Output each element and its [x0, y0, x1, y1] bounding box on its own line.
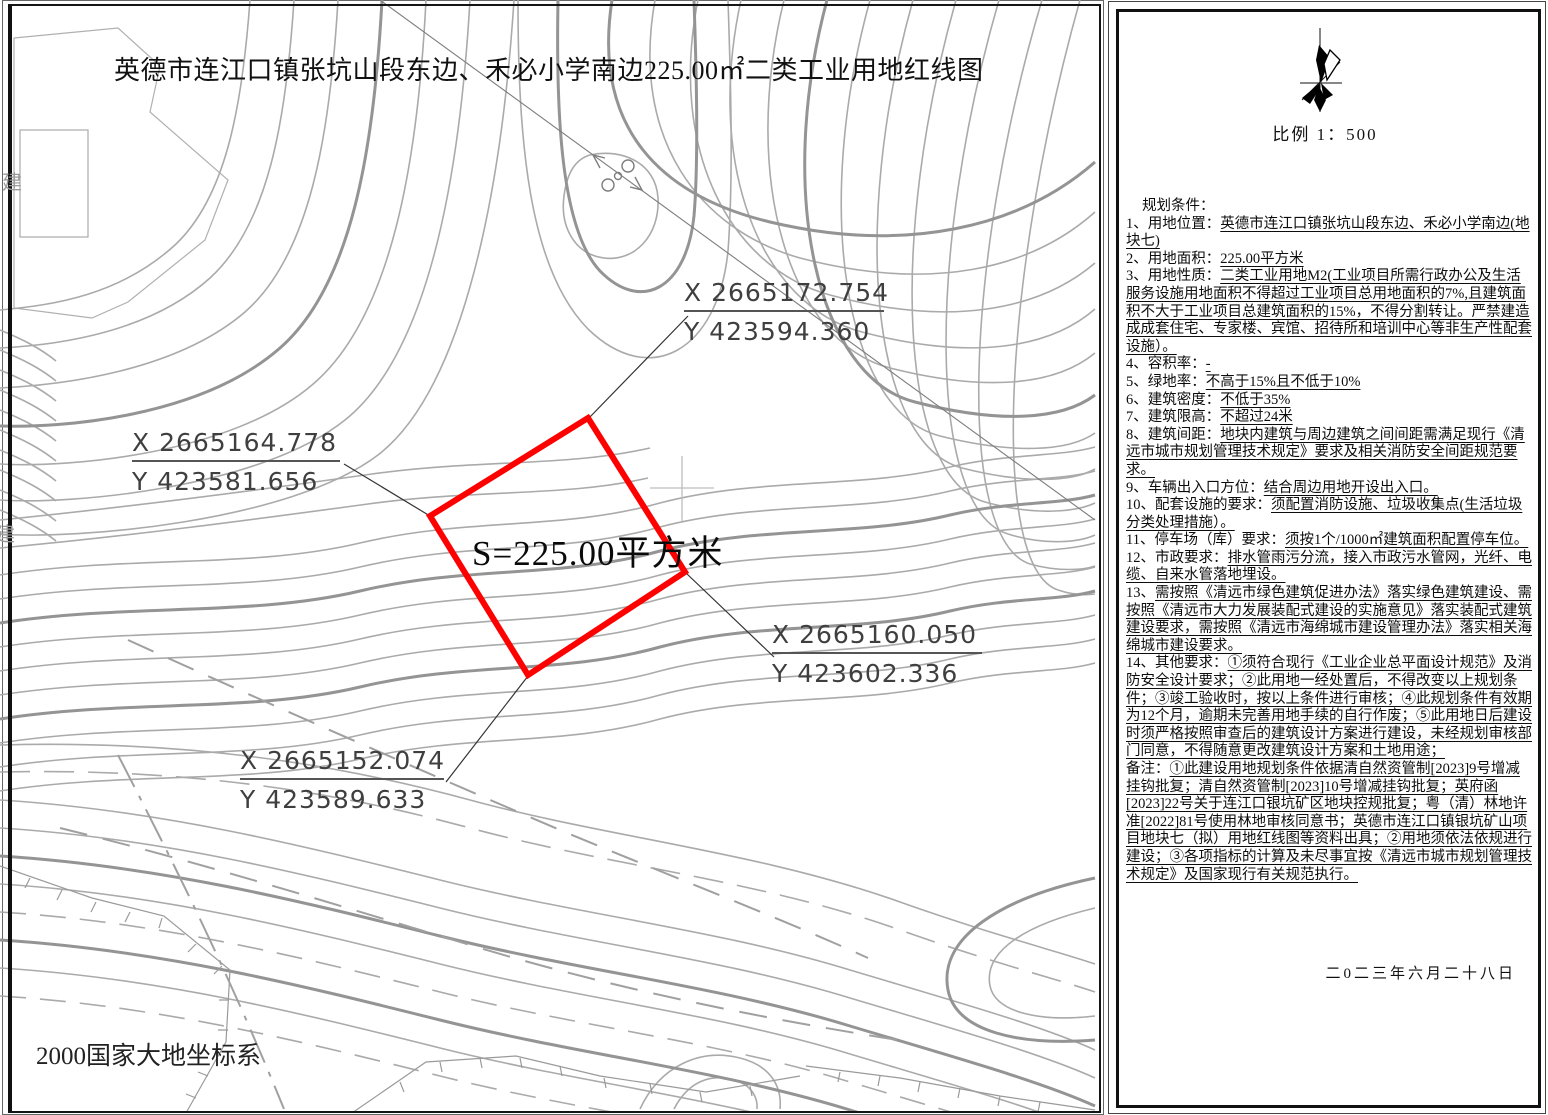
condition-item: 8、建筑间距：地块内建筑与周边建筑之间间距需满足现行《清远市城市规划管理技术规定… — [1126, 427, 1533, 480]
condition-item: 4、容积率：- — [1126, 356, 1533, 374]
coordinate-x: X 2665160.050 — [772, 620, 982, 654]
datum-label: 2000国家大地坐标系 — [36, 1036, 261, 1072]
coordinate-x: X 2665172.754 — [684, 278, 884, 312]
redline-map-sheet: 英德市连江口镇张坑山段东边、禾必小学南边225.00㎡二类工业用地红线图 S=2… — [0, 0, 1548, 1115]
conditions-title: 规划条件： — [1126, 198, 1533, 216]
building-label: 建 — [2, 166, 22, 195]
condition-item: 7、建筑限高：不超过24米 — [1126, 409, 1533, 427]
scale-label: 比例 1：500 — [1255, 120, 1395, 145]
remark-item: 备注：①此建设用地规划条件依据清自然资管制[2023]9号增减挂钩批复；清自然资… — [1126, 761, 1533, 884]
coordinate-label-s: X 2665152.074 Y 423589.633 — [240, 746, 444, 814]
coordinate-y: Y 423594.360 — [684, 312, 884, 346]
planning-conditions: 规划条件： 1、用地位置：英德市连江口镇张坑山段东边、禾必小学南边(地块七) 2… — [1126, 198, 1533, 884]
condition-item: 5、绿地率：不高于15%且不低于10% — [1126, 374, 1533, 392]
condition-item: 10、配套设施的要求：须配置消防设施、垃圾收集点(生活垃圾分类处理措施）。 — [1126, 497, 1533, 532]
condition-item: 1、用地位置：英德市连江口镇张坑山段东边、禾必小学南边(地块七) — [1126, 216, 1533, 251]
coordinate-x: X 2665164.778 — [132, 428, 340, 462]
condition-item: 13、需按照《清远市绿色建筑促进办法》落实绿色建筑建设、需按照《清远市大力发展装… — [1126, 585, 1533, 655]
coordinate-y: Y 423589.633 — [240, 780, 444, 814]
date-label: 二0二三年六月二十八日 — [1126, 962, 1516, 983]
coordinate-label-ne: X 2665172.754 Y 423594.360 — [684, 278, 884, 346]
north-arrow-icon — [1280, 12, 1370, 122]
condition-item: 2、用地面积：225.00平方米 — [1126, 251, 1533, 269]
coordinate-y: Y 423581.656 — [132, 462, 340, 496]
condition-item: 3、用地性质：二类工业用地M2(工业项目所需行政办公及生活服务设施用地面积不得超… — [1126, 268, 1533, 356]
condition-item: 11、停车场（库）要求：须按1个/1000㎡建筑面积配置停车位。 — [1126, 532, 1533, 550]
coordinate-x: X 2665152.074 — [240, 746, 444, 780]
coordinate-label-w: X 2665164.778 Y 423581.656 — [132, 428, 340, 496]
parcel-area-label: S=225.00平方米 — [472, 525, 723, 576]
coordinate-y: Y 423602.336 — [772, 654, 982, 688]
condition-item: 12、市政要求：排水管雨污分流，接入市政污水管网，光纤、电缆、自来水管落地埋设。 — [1126, 550, 1533, 585]
building-label: 建 — [0, 518, 15, 547]
condition-item: 14、其他要求：①须符合现行《工业企业总平面设计规范》及消防安全设计要求；②此用… — [1126, 655, 1533, 761]
condition-item: 6、建筑密度：不低于35% — [1126, 392, 1533, 410]
map-title: 英德市连江口镇张坑山段东边、禾必小学南边225.00㎡二类工业用地红线图 — [114, 50, 984, 87]
condition-item: 9、车辆出入口方位：结合周边用地开设出入口。 — [1126, 480, 1533, 498]
coordinate-label-se: X 2665160.050 Y 423602.336 — [772, 620, 982, 688]
